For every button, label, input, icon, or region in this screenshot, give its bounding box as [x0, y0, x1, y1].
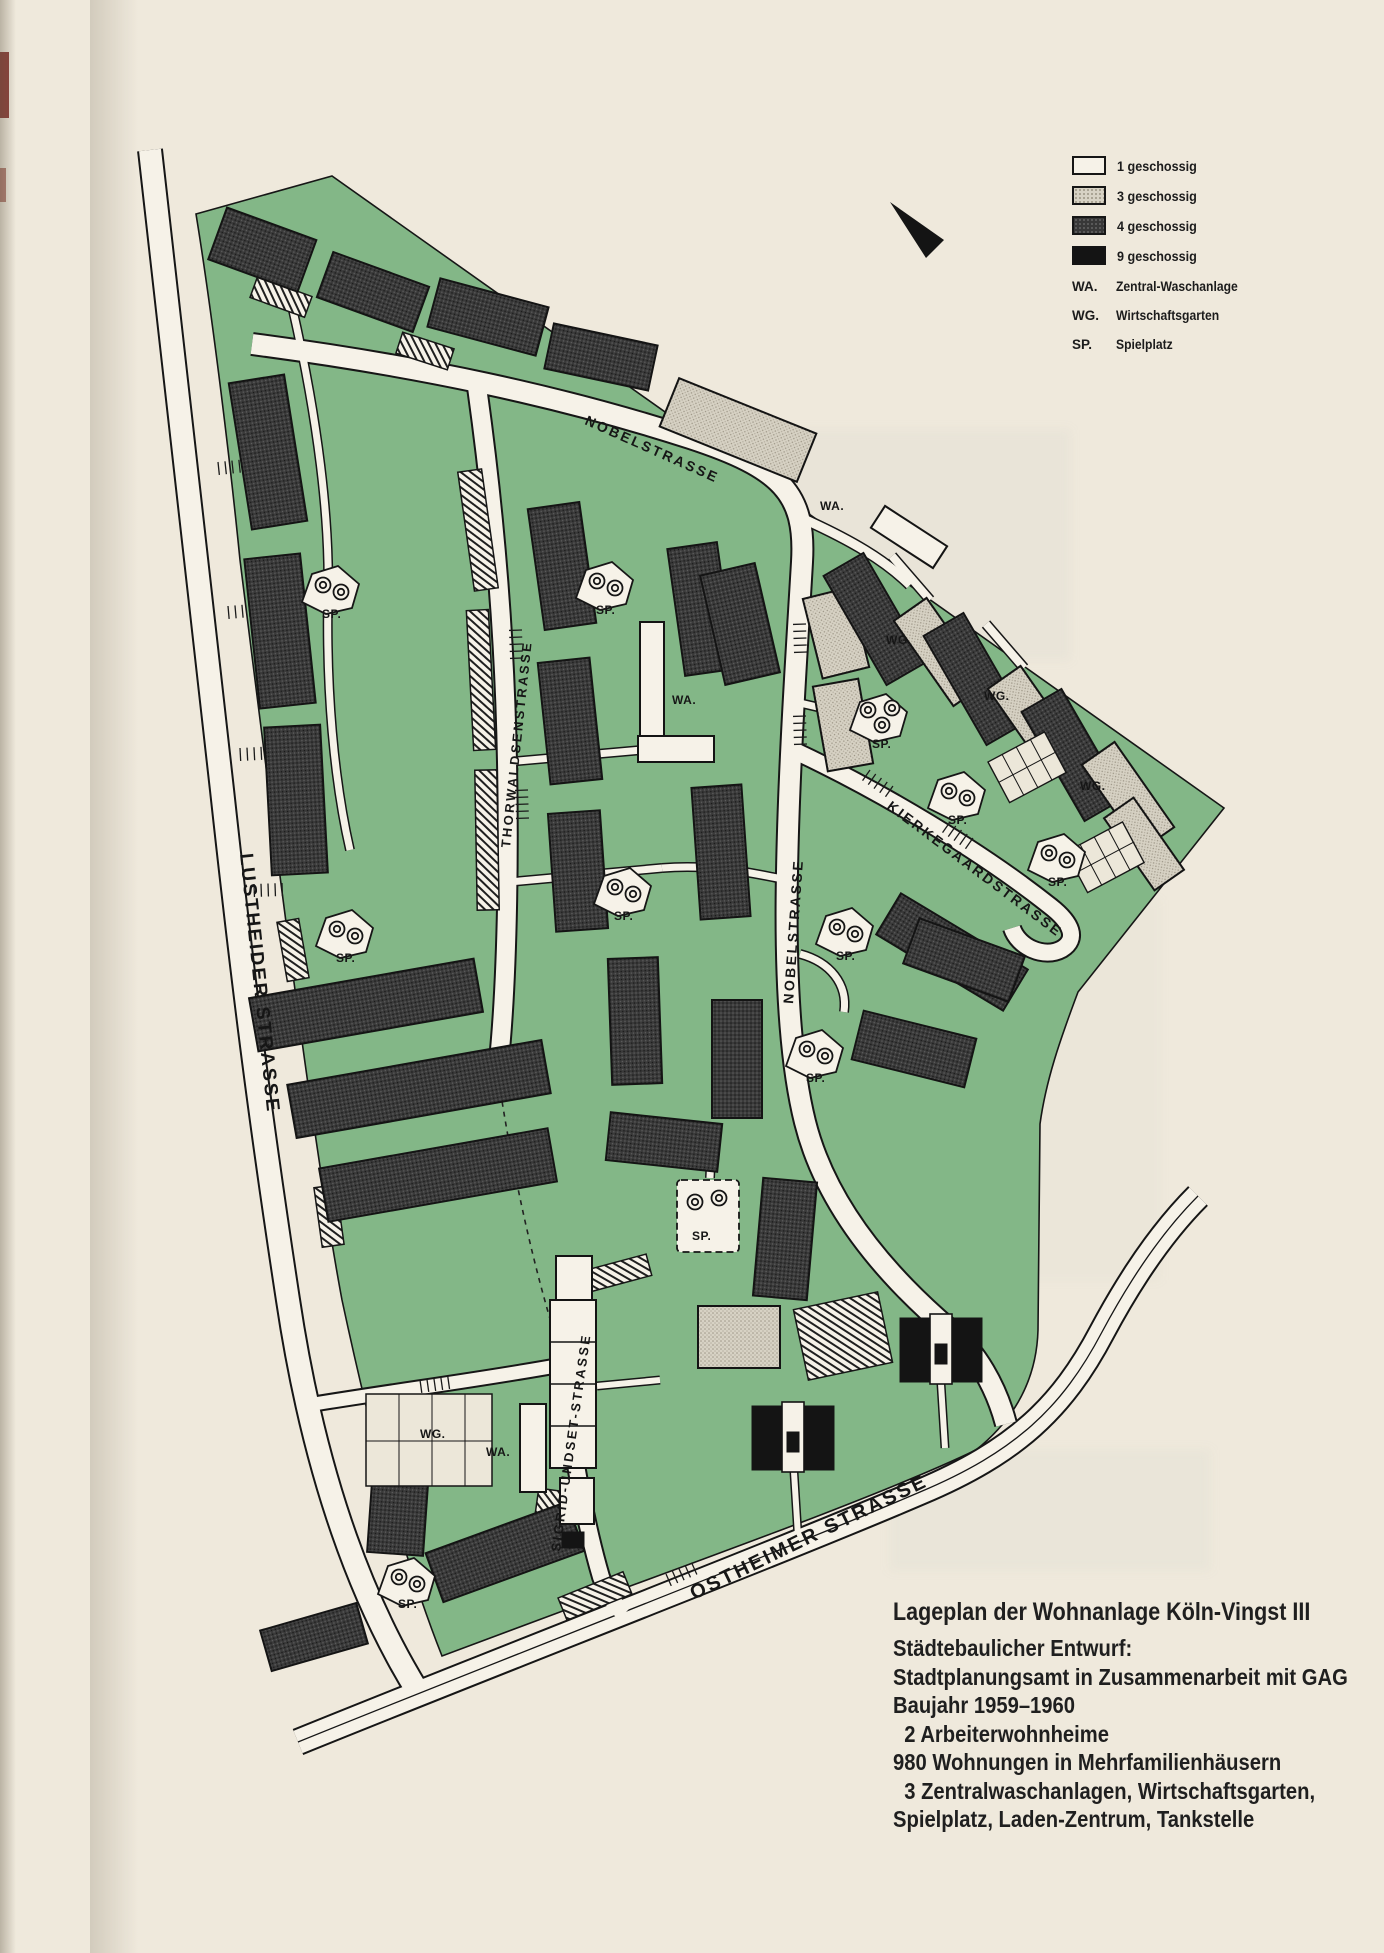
building-waschanlage: [520, 1404, 546, 1492]
legend-swatch-1geschossig: [1072, 156, 1106, 175]
sp-label: SP.: [836, 949, 855, 963]
page-edge-artifact: [0, 168, 6, 202]
legend-label: 9 geschossig: [1117, 248, 1197, 264]
building-4geschossig: [753, 1178, 817, 1300]
caption-line: Spielplatz, Laden-Zentrum, Tankstelle: [893, 1805, 1375, 1834]
sp-label: SP.: [1048, 875, 1067, 889]
garage-strip: [475, 770, 499, 910]
wg-label: WG.: [886, 633, 912, 647]
sp-label: SP.: [806, 1071, 825, 1085]
building-4geschossig: [548, 810, 608, 931]
building-9geschossig-arbeiterwohnheim: [900, 1314, 982, 1384]
sp-label: SP.: [322, 607, 341, 621]
sp-label: SP.: [336, 951, 355, 965]
scanned-page: WA. WA. WA. WG. WG. WG. WG. SP. SP. SP. …: [0, 0, 1384, 1953]
caption: Lageplan der Wohnanlage Köln-Vingst III …: [893, 1598, 1375, 1834]
legend-swatch-9geschossig: [1072, 246, 1106, 265]
legend-label: 3 geschossig: [1117, 188, 1197, 204]
legend-item-9geschossig: 9 geschossig: [1072, 246, 1372, 265]
legend-label: 1 geschossig: [1117, 158, 1197, 174]
legend-abbr-value: Wirtschaftsgarten: [1116, 308, 1219, 323]
legend-swatch-3geschossig: [1072, 186, 1106, 205]
wg-label: WG.: [420, 1427, 446, 1441]
building-waschanlage: [638, 736, 714, 762]
building-3geschossig: [698, 1306, 780, 1368]
page-edge-artifact: [0, 52, 9, 118]
sp-label: SP.: [596, 603, 615, 617]
legend-abbr-value: Spielplatz: [1116, 337, 1173, 352]
legend-abbr-key: WA.: [1072, 279, 1116, 294]
legend-abbr-value: Zentral-Waschanlage: [1116, 279, 1238, 294]
legend-item-4geschossig: 4 geschossig: [1072, 216, 1372, 235]
footpath: [794, 1472, 798, 1536]
building-1geschossig: [556, 1256, 592, 1300]
caption-line: Stadtplanungsamt in Zusammenarbeit mit G…: [893, 1663, 1375, 1692]
legend-abbr-key: SP.: [1072, 337, 1116, 352]
building-4geschossig: [608, 957, 662, 1085]
caption-line: Baujahr 1959–1960: [893, 1691, 1375, 1720]
legend-abbr-sp: SP. Spielplatz: [1072, 337, 1372, 352]
legend-abbr-key: WG.: [1072, 308, 1116, 323]
building-4geschossig: [712, 1000, 762, 1118]
legend-abbr-wa: WA. Zentral-Waschanlage: [1072, 279, 1372, 294]
caption-line: 2 Arbeiterwohnheime: [893, 1720, 1375, 1749]
wa-label: WA.: [486, 1445, 510, 1459]
wg-label: WG.: [984, 689, 1010, 703]
caption-line: 3 Zentralwaschanlagen, Wirtschaftsgarten…: [893, 1777, 1375, 1806]
building-9geschossig-arbeiterwohnheim: [752, 1402, 834, 1472]
building-4geschossig: [260, 1603, 368, 1671]
legend-label: 4 geschossig: [1117, 218, 1197, 234]
caption-title: Lageplan der Wohnanlage Köln-Vingst III: [893, 1598, 1375, 1627]
legend-swatch-4geschossig: [1072, 216, 1106, 235]
legend: 1 geschossig 3 geschossig 4 geschossig 9…: [1072, 156, 1372, 352]
north-arrow-icon: [890, 202, 944, 258]
sp-label: SP.: [398, 1597, 417, 1611]
legend-abbr-wg: WG. Wirtschaftsgarten: [1072, 308, 1372, 323]
wa-label: WA.: [820, 499, 844, 513]
caption-line: Städtebaulicher Entwurf:: [893, 1634, 1375, 1663]
sp-label: SP.: [692, 1229, 711, 1243]
legend-item-3geschossig: 3 geschossig: [1072, 186, 1372, 205]
wa-label: WA.: [672, 693, 696, 707]
caption-line: 980 Wohnungen in Mehrfamilienhäusern: [893, 1748, 1375, 1777]
sp-label: SP.: [614, 909, 633, 923]
building-4geschossig: [606, 1112, 722, 1171]
building-waschanlage: [640, 622, 664, 740]
wg-label: WG.: [1080, 779, 1106, 793]
legend-item-1geschossig: 1 geschossig: [1072, 156, 1372, 175]
building-4geschossig: [691, 784, 750, 919]
footpath: [941, 1384, 945, 1448]
sp-label: SP.: [872, 737, 891, 751]
building-4geschossig: [264, 725, 328, 876]
sp-label: SP.: [948, 813, 967, 827]
